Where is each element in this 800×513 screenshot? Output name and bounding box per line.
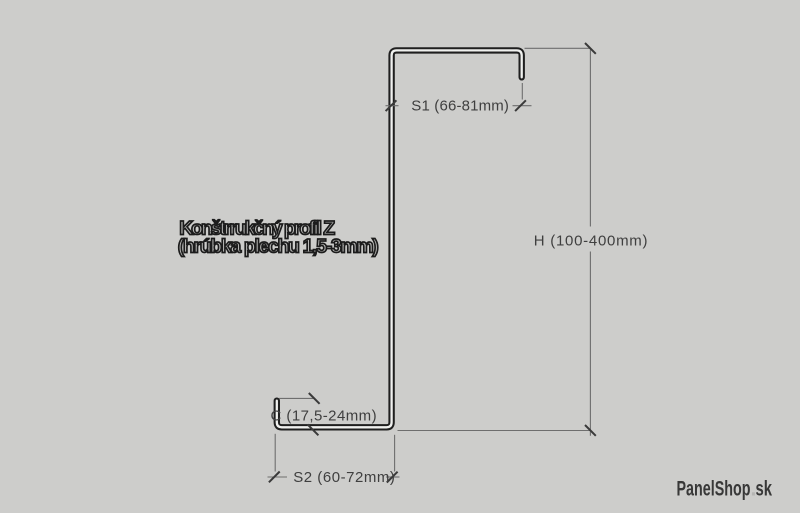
svg-text:sk: sk: [756, 478, 773, 501]
svg-text:S1 (66-81mm): S1 (66-81mm): [411, 97, 509, 114]
svg-text:H (100-400mm): H (100-400mm): [534, 232, 648, 249]
svg-text:(hrúbka plechu 1,5-3mm): (hrúbka plechu 1,5-3mm): [178, 236, 379, 258]
svg-text:S2 (60-72mm): S2 (60-72mm): [293, 469, 395, 486]
svg-text:C (17,5-24mm): C (17,5-24mm): [271, 407, 377, 424]
svg-text:PanelShop: PanelShop: [677, 478, 751, 501]
